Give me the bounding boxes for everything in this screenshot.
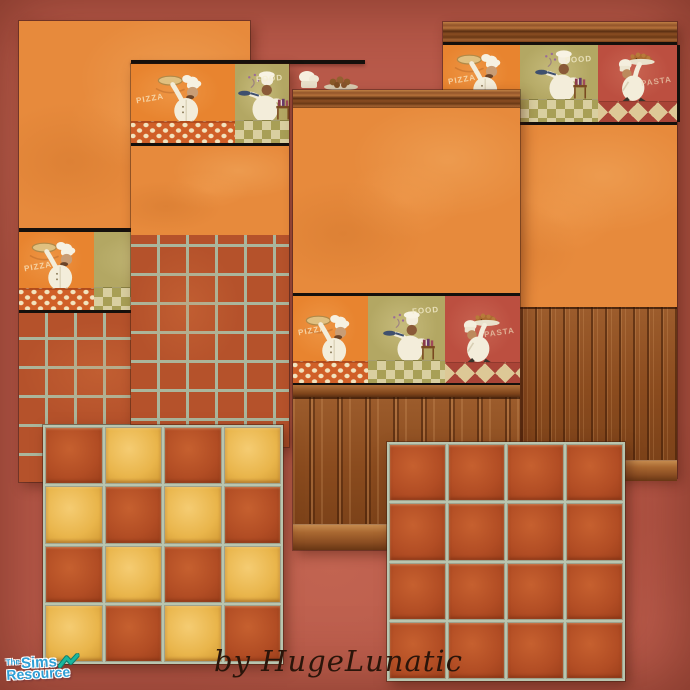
pie-floor-pattern [445,362,520,383]
floor-tile-terracotta [225,487,281,542]
floor-tile-gold [225,428,281,483]
floor-tile-terracotta [106,487,162,542]
floor-tile-terracotta [567,445,622,500]
pie-chef-section: PASTA [598,45,677,122]
pizza-floor-pattern [19,288,94,310]
floor-tile-terracotta [390,564,445,619]
floor-tile-gold [165,487,221,542]
border-word: FOOD [256,73,284,84]
pizza-chef-section: PIZZA [19,232,94,310]
cook-chef-section: FOOD [368,296,445,383]
wood-molding [443,22,677,42]
floor-tile-gold [165,606,221,661]
floor-tile-gold [46,487,102,542]
tsr-logo: TheSims Resource [5,652,80,682]
floor-tile-terracotta [449,564,504,619]
chef-border: PIZZA FOOD [131,64,289,143]
floor-tile-terracotta [449,504,504,559]
floor-tile-terracotta [106,606,162,661]
border-word: FOOD [412,305,440,316]
cook-floor-pattern [368,360,445,383]
border-word: FOOD [565,54,593,65]
cook-floor-pattern [235,120,289,143]
pizza-chef-section: PIZZA [131,64,235,143]
cook-chef-section: FOOD [520,45,598,122]
pizza-chef-section: PIZZA [293,296,368,383]
floor-tile-gold [106,428,162,483]
floor-tile-terracotta [165,547,221,602]
floor-tile-terracotta [508,623,563,678]
floor-tile-terracotta [508,504,563,559]
checker-floor-swatch [43,425,283,664]
chef-hat-and-pie-plate-icon [295,68,365,92]
floor-tile-terracotta [567,504,622,559]
cook-floor-pattern [520,99,598,122]
tile-wainscot-section [131,235,289,447]
floor-tile-terracotta [165,428,221,483]
shelf-decorations [293,70,520,90]
floor-tile-terracotta [390,445,445,500]
floor-tile-gold [225,547,281,602]
pizza-floor-pattern [131,121,235,143]
orange-wall-section [131,146,289,235]
pie-floor-pattern [598,101,677,122]
cook-chef-section: FOOD [235,64,289,143]
floor-tile-terracotta [567,623,622,678]
floor-tile-terracotta [46,547,102,602]
floor-tile-terracotta [508,564,563,619]
floor-tile-terracotta [508,445,563,500]
tsr-logo-resource: Resource [6,665,81,682]
floor-tile-terracotta [449,445,504,500]
creator-credit: by HugeLunatic [214,644,463,678]
floor-tile-terracotta [46,428,102,483]
pizza-floor-pattern [293,361,368,383]
floor-tile-terracotta [567,564,622,619]
wall-swatch-border-top-tile: PIZZA FOOD [131,64,289,447]
tsr-preview-image: PIZZA FOOD PIZZA [0,0,690,690]
chef-border: PIZZA FOOD PASTA [293,296,520,383]
pie-chef-section: PASTA [445,296,520,383]
orange-wall-section [293,108,520,293]
shelf-molding [293,90,520,108]
floor-tile-gold [106,547,162,602]
wainscot-rail [293,383,520,397]
floor-tile-terracotta [390,504,445,559]
